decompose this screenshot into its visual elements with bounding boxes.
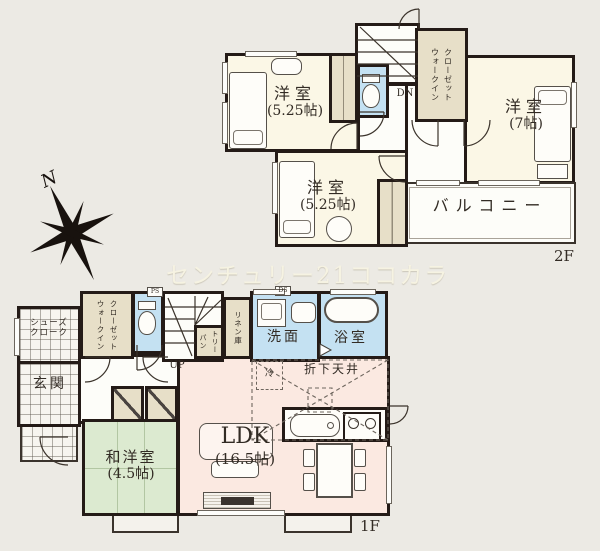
stove-icon — [343, 412, 381, 442]
refrigerator-label: 冷 — [256, 369, 283, 380]
pipe-space-label: PS — [147, 288, 163, 296]
toilet-bowl-icon — [362, 84, 380, 108]
chair-icon — [303, 449, 315, 467]
watermark-text: センチュリー21ココカラ — [166, 256, 449, 290]
chair-icon — [303, 473, 315, 491]
bedroom1-label: 洋室 (5.25帖) — [252, 84, 338, 120]
window — [478, 180, 540, 186]
dresser-icon — [271, 58, 302, 75]
bedroom2-label: 洋室 (7帖) — [490, 97, 562, 133]
chair-icon — [354, 449, 366, 467]
window — [245, 51, 297, 57]
terrace-step — [284, 514, 352, 533]
duct-space-label: DS — [275, 287, 291, 295]
window — [222, 102, 228, 144]
compass-star-minor — [28, 189, 115, 276]
tv-icon — [221, 497, 254, 505]
compass-north-label: N — [37, 166, 62, 193]
toilet-tank-icon — [138, 301, 156, 310]
kitchen-sink-icon — [290, 414, 340, 437]
entrance-porch — [20, 424, 78, 462]
tatami-room-closet — [145, 386, 178, 422]
basin-icon — [261, 303, 282, 320]
washing-machine-icon — [291, 302, 316, 323]
kitchen-counter — [282, 407, 388, 442]
floor2-label: 2F — [548, 247, 580, 265]
bedroom3-label: 洋室 (5.25帖) — [285, 178, 371, 214]
window — [272, 162, 278, 214]
ldk-label: LDK (16.5帖) — [204, 424, 286, 468]
window — [14, 318, 20, 356]
stool-icon — [326, 216, 352, 242]
entrance-label: 玄関 — [28, 376, 72, 393]
window — [386, 446, 392, 504]
window — [330, 289, 376, 295]
pillow-icon — [283, 220, 311, 234]
floor1-label: 1F — [354, 517, 386, 535]
window — [416, 180, 460, 186]
toilet-bowl-icon — [138, 311, 156, 335]
tatami-room-label: 和洋室 (4.5帖) — [97, 448, 165, 483]
shoes-closet-label: シューズ クローク — [22, 318, 76, 338]
tv-board-icon — [203, 492, 271, 509]
window — [197, 510, 285, 516]
walkin-closet-label: ウォークイン クローゼット — [418, 34, 465, 116]
bathtub-icon — [324, 297, 379, 323]
pillow-icon — [233, 130, 263, 145]
faucet-icon — [327, 422, 334, 429]
dining-table-icon — [316, 443, 353, 498]
compass-star — [22, 166, 117, 280]
walkin-closet-label: ウォークイン クローゼット — [84, 297, 130, 353]
balcony-label: バルコニー — [428, 196, 552, 215]
floor1-entrance — [17, 361, 81, 427]
desk-icon — [537, 164, 568, 179]
toilet-tank-icon — [362, 74, 380, 83]
burner-icon — [365, 418, 376, 429]
back-door-swing — [390, 406, 408, 424]
chair-icon — [354, 473, 366, 491]
pantry-label: パン トリー — [196, 328, 222, 356]
stairs-up-label: UP — [162, 360, 192, 372]
stairs-dn-label: DN — [390, 88, 420, 100]
floorplan-page: { "colors": { "background": "#eceae4", "… — [0, 0, 600, 551]
tatami-room-closet — [111, 386, 144, 422]
burner-icon — [348, 418, 359, 429]
window — [571, 82, 577, 128]
lowered-ceiling-label: 折下天井 — [300, 362, 364, 376]
floor2-bedroom3-closet — [377, 179, 408, 247]
compass-rose: N — [22, 165, 117, 280]
linen-label: リネン庫 — [226, 301, 250, 355]
window — [222, 62, 228, 94]
bathroom-label: 浴室 — [327, 330, 375, 347]
vanity-icon — [257, 299, 286, 327]
terrace-step — [112, 514, 179, 533]
washroom-label: 洗面 — [258, 329, 310, 346]
